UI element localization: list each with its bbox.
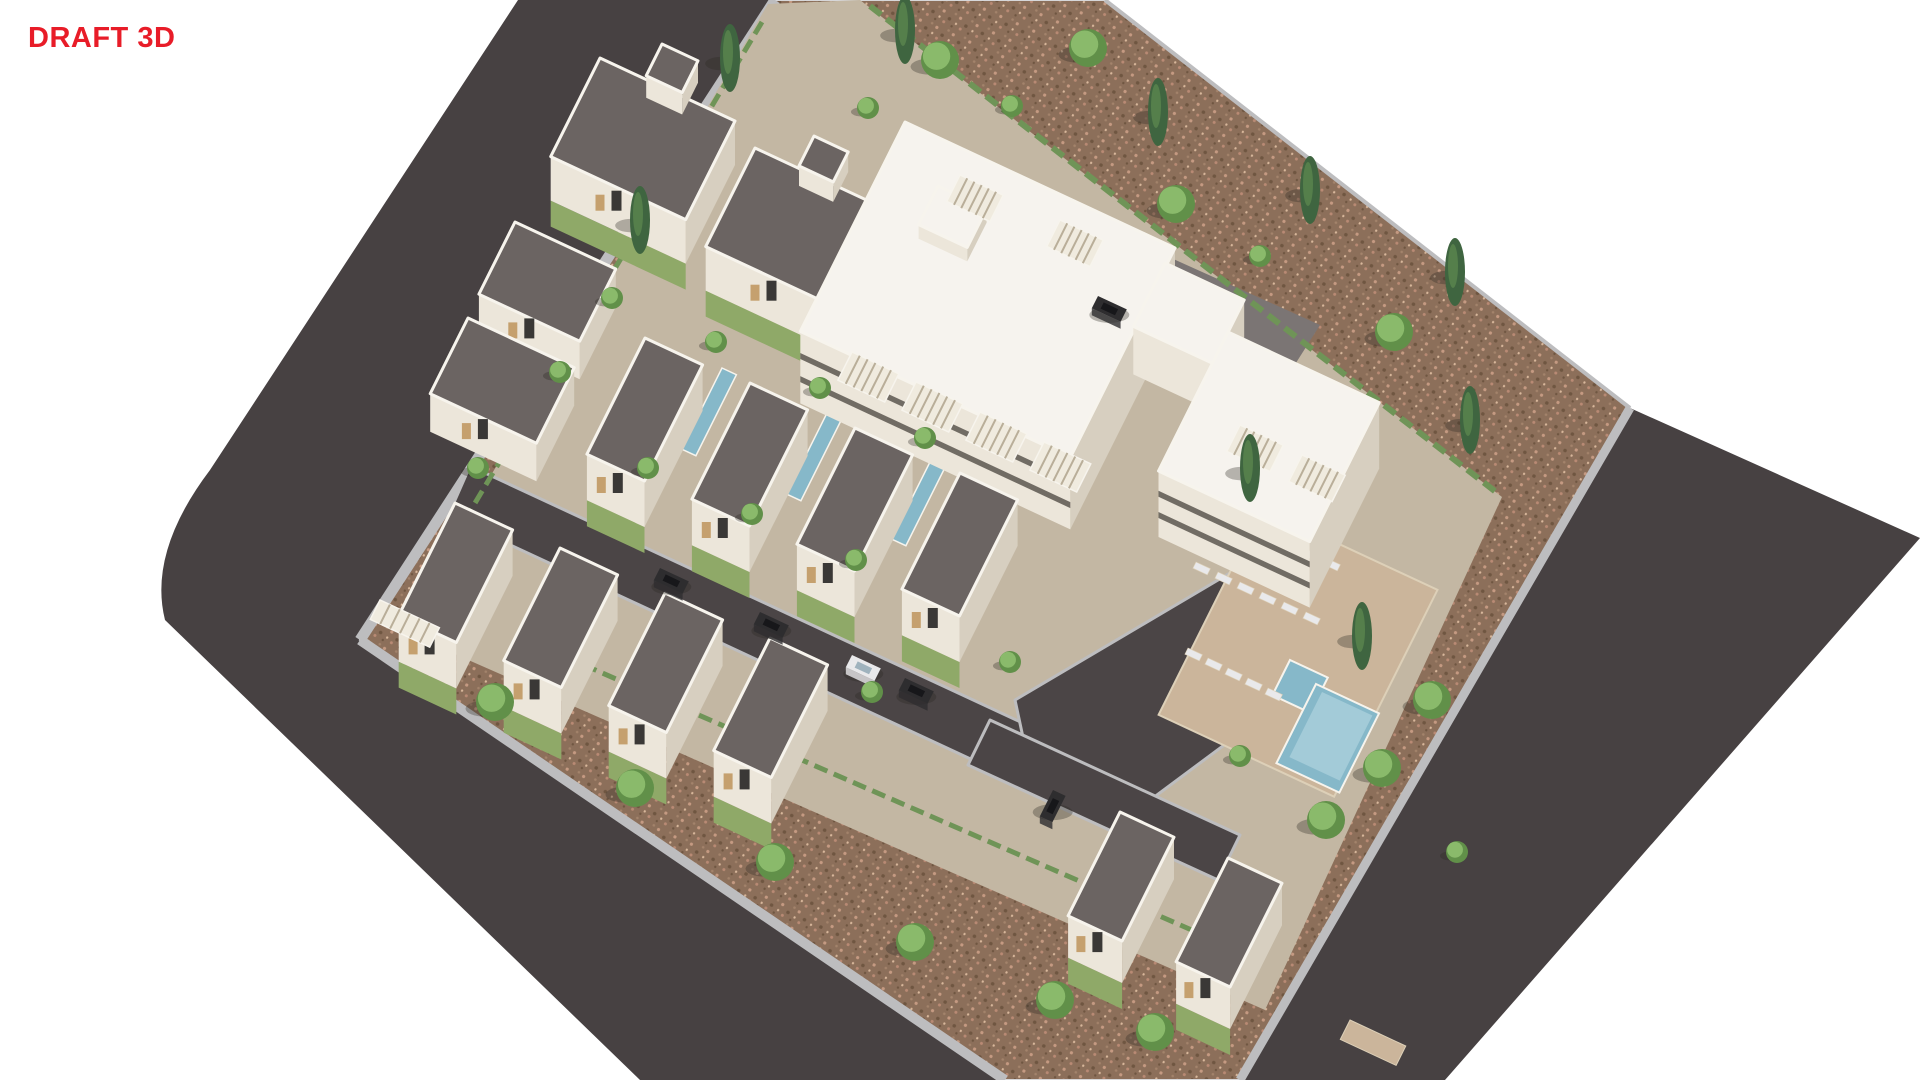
villa-c1-window: [1092, 932, 1102, 952]
villa-m1-window: [613, 473, 623, 493]
villa-m3-door: [807, 567, 816, 583]
villa-m2-door: [702, 522, 711, 538]
villa-north-2-door: [751, 285, 760, 301]
villa-m4-window: [928, 608, 938, 628]
villa-north-2-window: [767, 281, 777, 301]
villa-r3-door: [619, 728, 628, 744]
villa-c2-window: [1200, 978, 1210, 998]
garage-north-window: [524, 318, 534, 338]
villa-r3-window: [635, 724, 645, 744]
villa-m2-window: [718, 518, 728, 538]
villa-north-1-window: [612, 191, 622, 211]
garage-west-window: [478, 419, 488, 439]
villa-r2-door: [514, 683, 523, 699]
villa-c2-door: [1184, 982, 1193, 998]
villa-c1-door: [1076, 936, 1085, 952]
villa-r4-door: [724, 773, 733, 789]
villa-m1-door: [597, 477, 606, 493]
villa-r2-window: [530, 679, 540, 699]
villa-m4-door: [912, 612, 921, 628]
villa-m3-window: [823, 563, 833, 583]
site-plan-canvas: [0, 0, 1920, 1080]
draft-watermark: DRAFT 3D: [28, 22, 175, 55]
villa-r4-window: [740, 769, 750, 789]
masterplan-3d-render: DRAFT 3D: [0, 0, 1920, 1080]
garage-west-door: [462, 423, 471, 439]
villa-north-1-door: [596, 195, 605, 211]
